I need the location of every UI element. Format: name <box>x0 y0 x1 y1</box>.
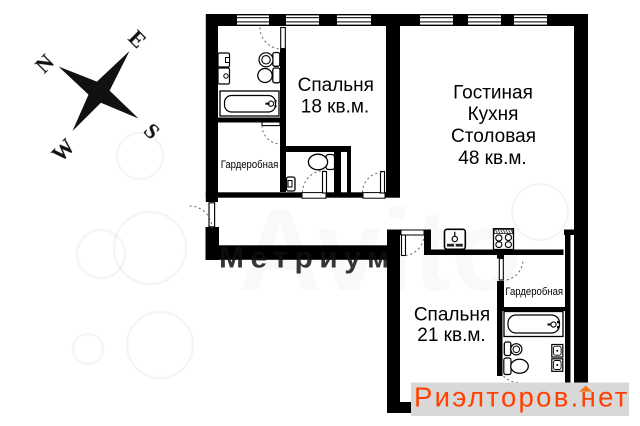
svg-text:Риэлторов.нет: Риэлторов.нет <box>414 382 630 413</box>
svg-text:Кухня: Кухня <box>468 104 519 125</box>
svg-text:Столовая: Столовая <box>451 126 536 147</box>
svg-text:Метриум: Метриум <box>219 242 396 275</box>
svg-text:18 кв.м.: 18 кв.м. <box>301 97 369 118</box>
svg-text:Гардеробная: Гардеробная <box>505 286 563 298</box>
svg-text:Гостиная: Гостиная <box>453 82 533 103</box>
svg-text:48 кв.м.: 48 кв.м. <box>458 148 526 169</box>
svg-text:Гардеробная: Гардеробная <box>221 159 279 171</box>
svg-text:Спальня: Спальня <box>298 75 374 96</box>
svg-text:Спальня: Спальня <box>414 304 490 325</box>
svg-text:21 кв.м.: 21 кв.м. <box>417 325 485 346</box>
